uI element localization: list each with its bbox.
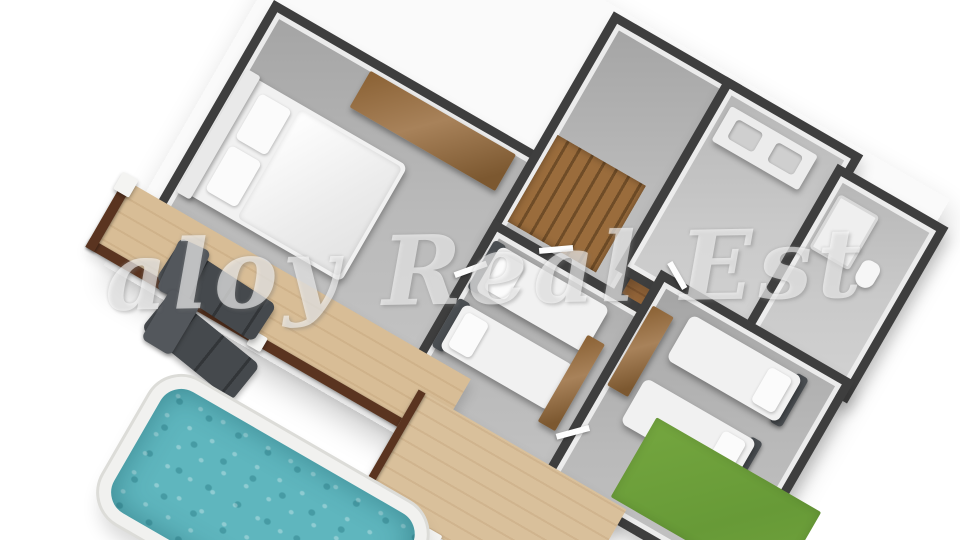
sink-basin-2	[767, 142, 804, 176]
toilet	[852, 257, 883, 291]
sink-basin-1	[727, 119, 764, 153]
floor-plan-render: aloy Real Est	[0, 0, 960, 540]
